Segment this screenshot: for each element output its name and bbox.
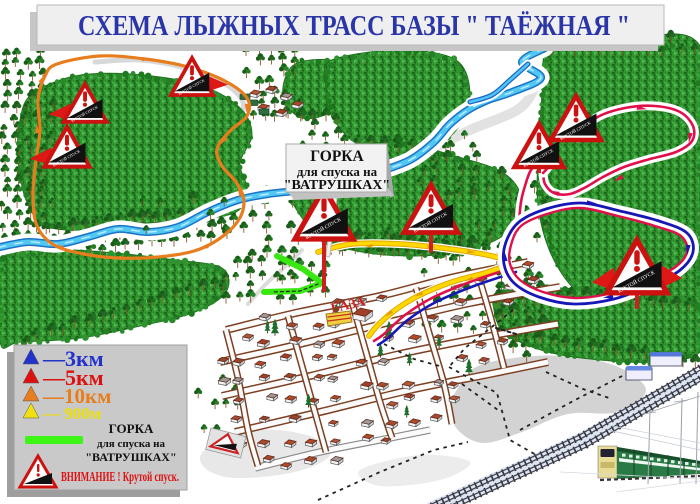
svg-text:для спуска на: для спуска на [97,438,165,450]
svg-text:для спуска на: для спуска на [297,164,378,179]
svg-text:— 900м: — 900м [42,404,102,423]
svg-text:"ВАТРУШКАХ": "ВАТРУШКАХ" [85,450,176,464]
svg-text:"ВАТРУШКАХ": "ВАТРУШКАХ" [284,178,390,193]
svg-text:СХЕМА ЛЫЖНЫХ ТРАСС БАЗЫ " ТАЁЖ: СХЕМА ЛЫЖНЫХ ТРАСС БАЗЫ " ТАЁЖНАЯ " [78,11,630,42]
svg-text:ГОРКА: ГОРКА [310,148,364,165]
svg-text:ГОРКА: ГОРКА [109,421,154,436]
svg-text:ВНИМАНИЕ ! Крутой спуск.: ВНИМАНИЕ ! Крутой спуск. [61,470,179,485]
